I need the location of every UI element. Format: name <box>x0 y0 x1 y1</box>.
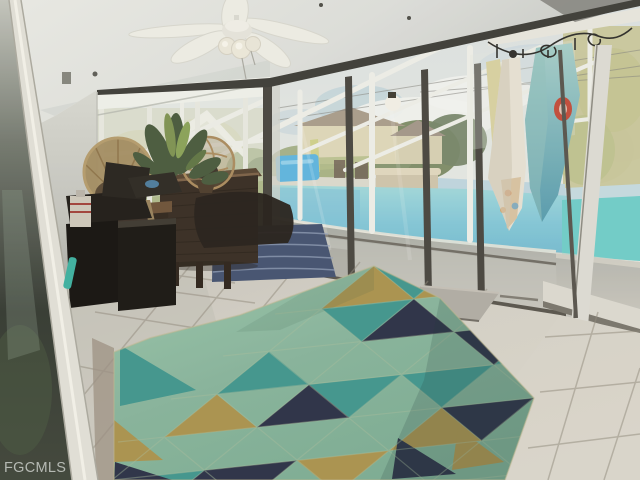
svg-text:FGCMLS: FGCMLS <box>4 460 66 476</box>
